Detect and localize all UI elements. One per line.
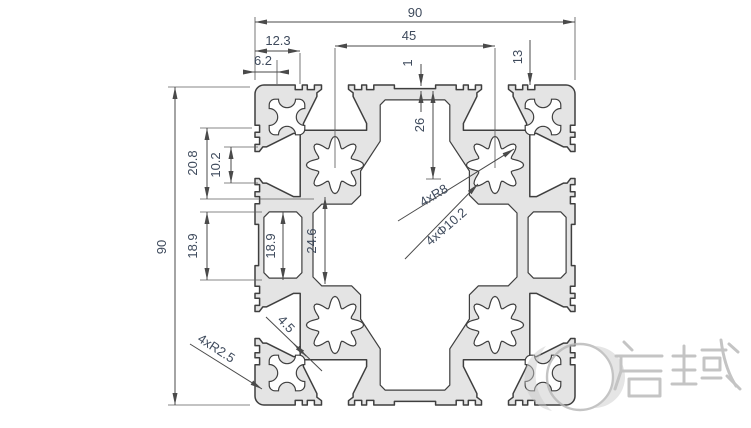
watermark-char-qi-stroke — [629, 379, 660, 396]
dim-label-d13: 13 — [510, 50, 525, 64]
side-cavity-right — [528, 212, 566, 278]
gear-hole — [466, 296, 523, 353]
dim-label-d18_9_inner: 18.9 — [263, 233, 278, 258]
gear-hole — [306, 296, 363, 353]
dim-label-d10_2: 10.2 — [208, 152, 223, 177]
dim-label-d1: 1 — [400, 59, 415, 66]
dim-label-d24_6: 24.6 — [304, 228, 319, 253]
watermark-text: 启域 — [676, 342, 751, 409]
dim-label-d26: 26 — [412, 118, 427, 132]
dim-label-d45: 45 — [402, 28, 416, 43]
dim-label-d12_3: 12.3 — [265, 33, 290, 48]
dim-label-w90_top: 90 — [408, 5, 422, 20]
dim-label-d20_8: 20.8 — [185, 150, 200, 175]
dim-label-d6_2: 6.2 — [254, 53, 272, 68]
watermark-char-qi-stroke — [624, 342, 632, 350]
dim-label-h90_left: 90 — [154, 240, 169, 254]
dim-label-d4_5: 4.5 — [275, 312, 298, 335]
dim-label-d18_9_outer: 18.9 — [185, 233, 200, 258]
aluminum-profile-technical-drawing: 9012.36.245113269020.810.218.918.924.64x… — [0, 0, 751, 428]
drawing-canvas: 9012.36.245113269020.810.218.918.924.64x… — [0, 0, 751, 428]
